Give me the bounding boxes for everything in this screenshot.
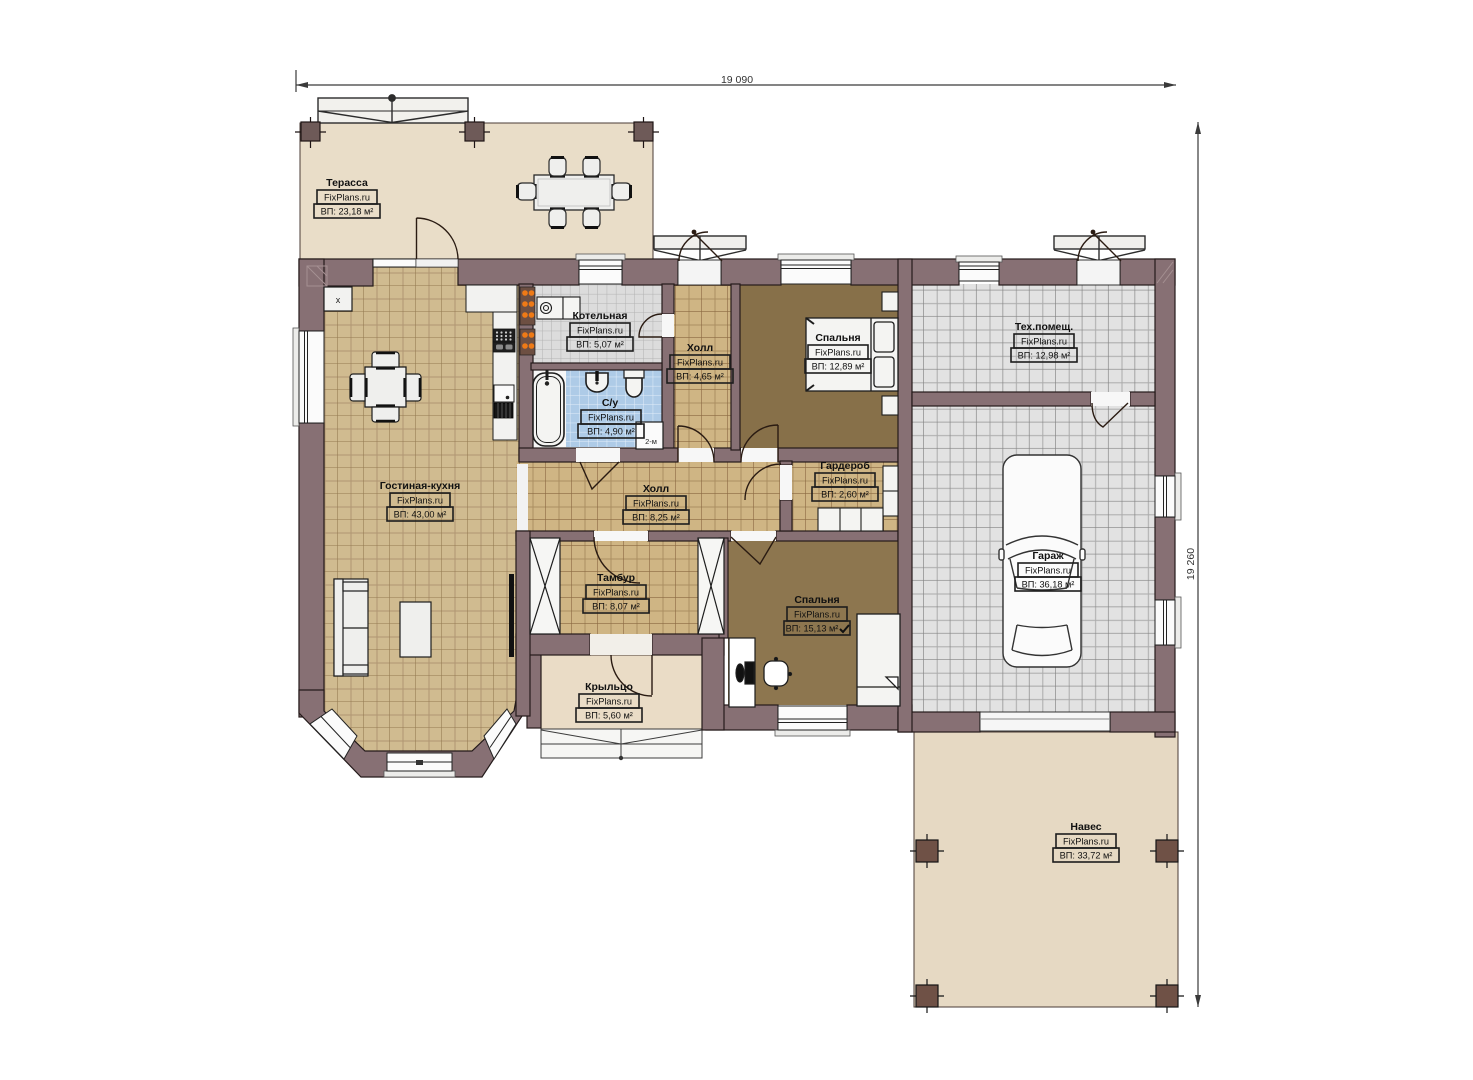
svg-text:Тех.помещ.: Тех.помещ. [1015,321,1073,333]
svg-text:ВП: 36,18 м²: ВП: 36,18 м² [1022,580,1075,590]
svg-text:Гостиная-кухня: Гостиная-кухня [380,480,460,492]
svg-text:ВП: 4,65 м²: ВП: 4,65 м² [676,372,724,382]
svg-text:ВП: 5,07 м²: ВП: 5,07 м² [576,340,624,350]
svg-text:2-м: 2-м [645,437,657,446]
svg-text:FixPlans.ru: FixPlans.ru [1025,566,1071,576]
svg-text:ВП: 2,60 м²: ВП: 2,60 м² [821,490,869,500]
svg-text:Терасса: Терасса [326,177,368,189]
svg-text:FixPlans.ru: FixPlans.ru [794,610,840,620]
svg-text:Котельная: Котельная [573,310,628,322]
svg-text:19 260: 19 260 [1185,548,1197,580]
svg-text:FixPlans.ru: FixPlans.ru [593,588,639,598]
svg-text:ВП: 15,13 м²: ВП: 15,13 м² [786,624,839,634]
svg-text:FixPlans.ru: FixPlans.ru [324,193,370,203]
svg-text:Спальня: Спальня [815,332,860,344]
svg-text:ВП: 8,07 м²: ВП: 8,07 м² [592,602,640,612]
svg-text:19 090: 19 090 [721,74,753,86]
svg-text:ВП: 33,72 м²: ВП: 33,72 м² [1060,851,1113,861]
svg-text:FixPlans.ru: FixPlans.ru [822,476,868,486]
svg-text:x: x [336,295,341,305]
svg-text:FixPlans.ru: FixPlans.ru [577,326,623,336]
svg-text:ВП: 8,25 м²: ВП: 8,25 м² [632,513,680,523]
svg-text:ВП: 12,98 м²: ВП: 12,98 м² [1018,351,1071,361]
svg-text:FixPlans.ru: FixPlans.ru [588,413,634,423]
svg-text:Тамбур: Тамбур [597,572,635,584]
svg-text:FixPlans.ru: FixPlans.ru [1063,837,1109,847]
svg-text:ВП: 12,89 м²: ВП: 12,89 м² [812,362,865,372]
svg-text:FixPlans.ru: FixPlans.ru [397,496,443,506]
svg-text:Холл: Холл [687,342,713,354]
svg-text:Спальня: Спальня [794,594,839,606]
svg-text:FixPlans.ru: FixPlans.ru [1021,337,1067,347]
svg-text:Гардероб: Гардероб [820,460,870,472]
svg-text:FixPlans.ru: FixPlans.ru [677,358,723,368]
svg-text:Холл: Холл [643,483,669,495]
svg-text:С/у: С/у [602,397,619,409]
svg-text:FixPlans.ru: FixPlans.ru [586,697,632,707]
svg-text:ВП: 4,90 м²: ВП: 4,90 м² [587,427,635,437]
svg-text:Крыльцо: Крыльцо [585,681,633,693]
svg-text:Гараж: Гараж [1032,550,1064,562]
svg-text:ВП: 23,18 м²: ВП: 23,18 м² [321,207,374,217]
svg-text:ВП: 5,60 м²: ВП: 5,60 м² [585,711,633,721]
svg-text:FixPlans.ru: FixPlans.ru [633,499,679,509]
svg-text:ВП: 43,00 м²: ВП: 43,00 м² [394,510,447,520]
svg-text:FixPlans.ru: FixPlans.ru [815,348,861,358]
svg-text:Навес: Навес [1070,821,1101,833]
